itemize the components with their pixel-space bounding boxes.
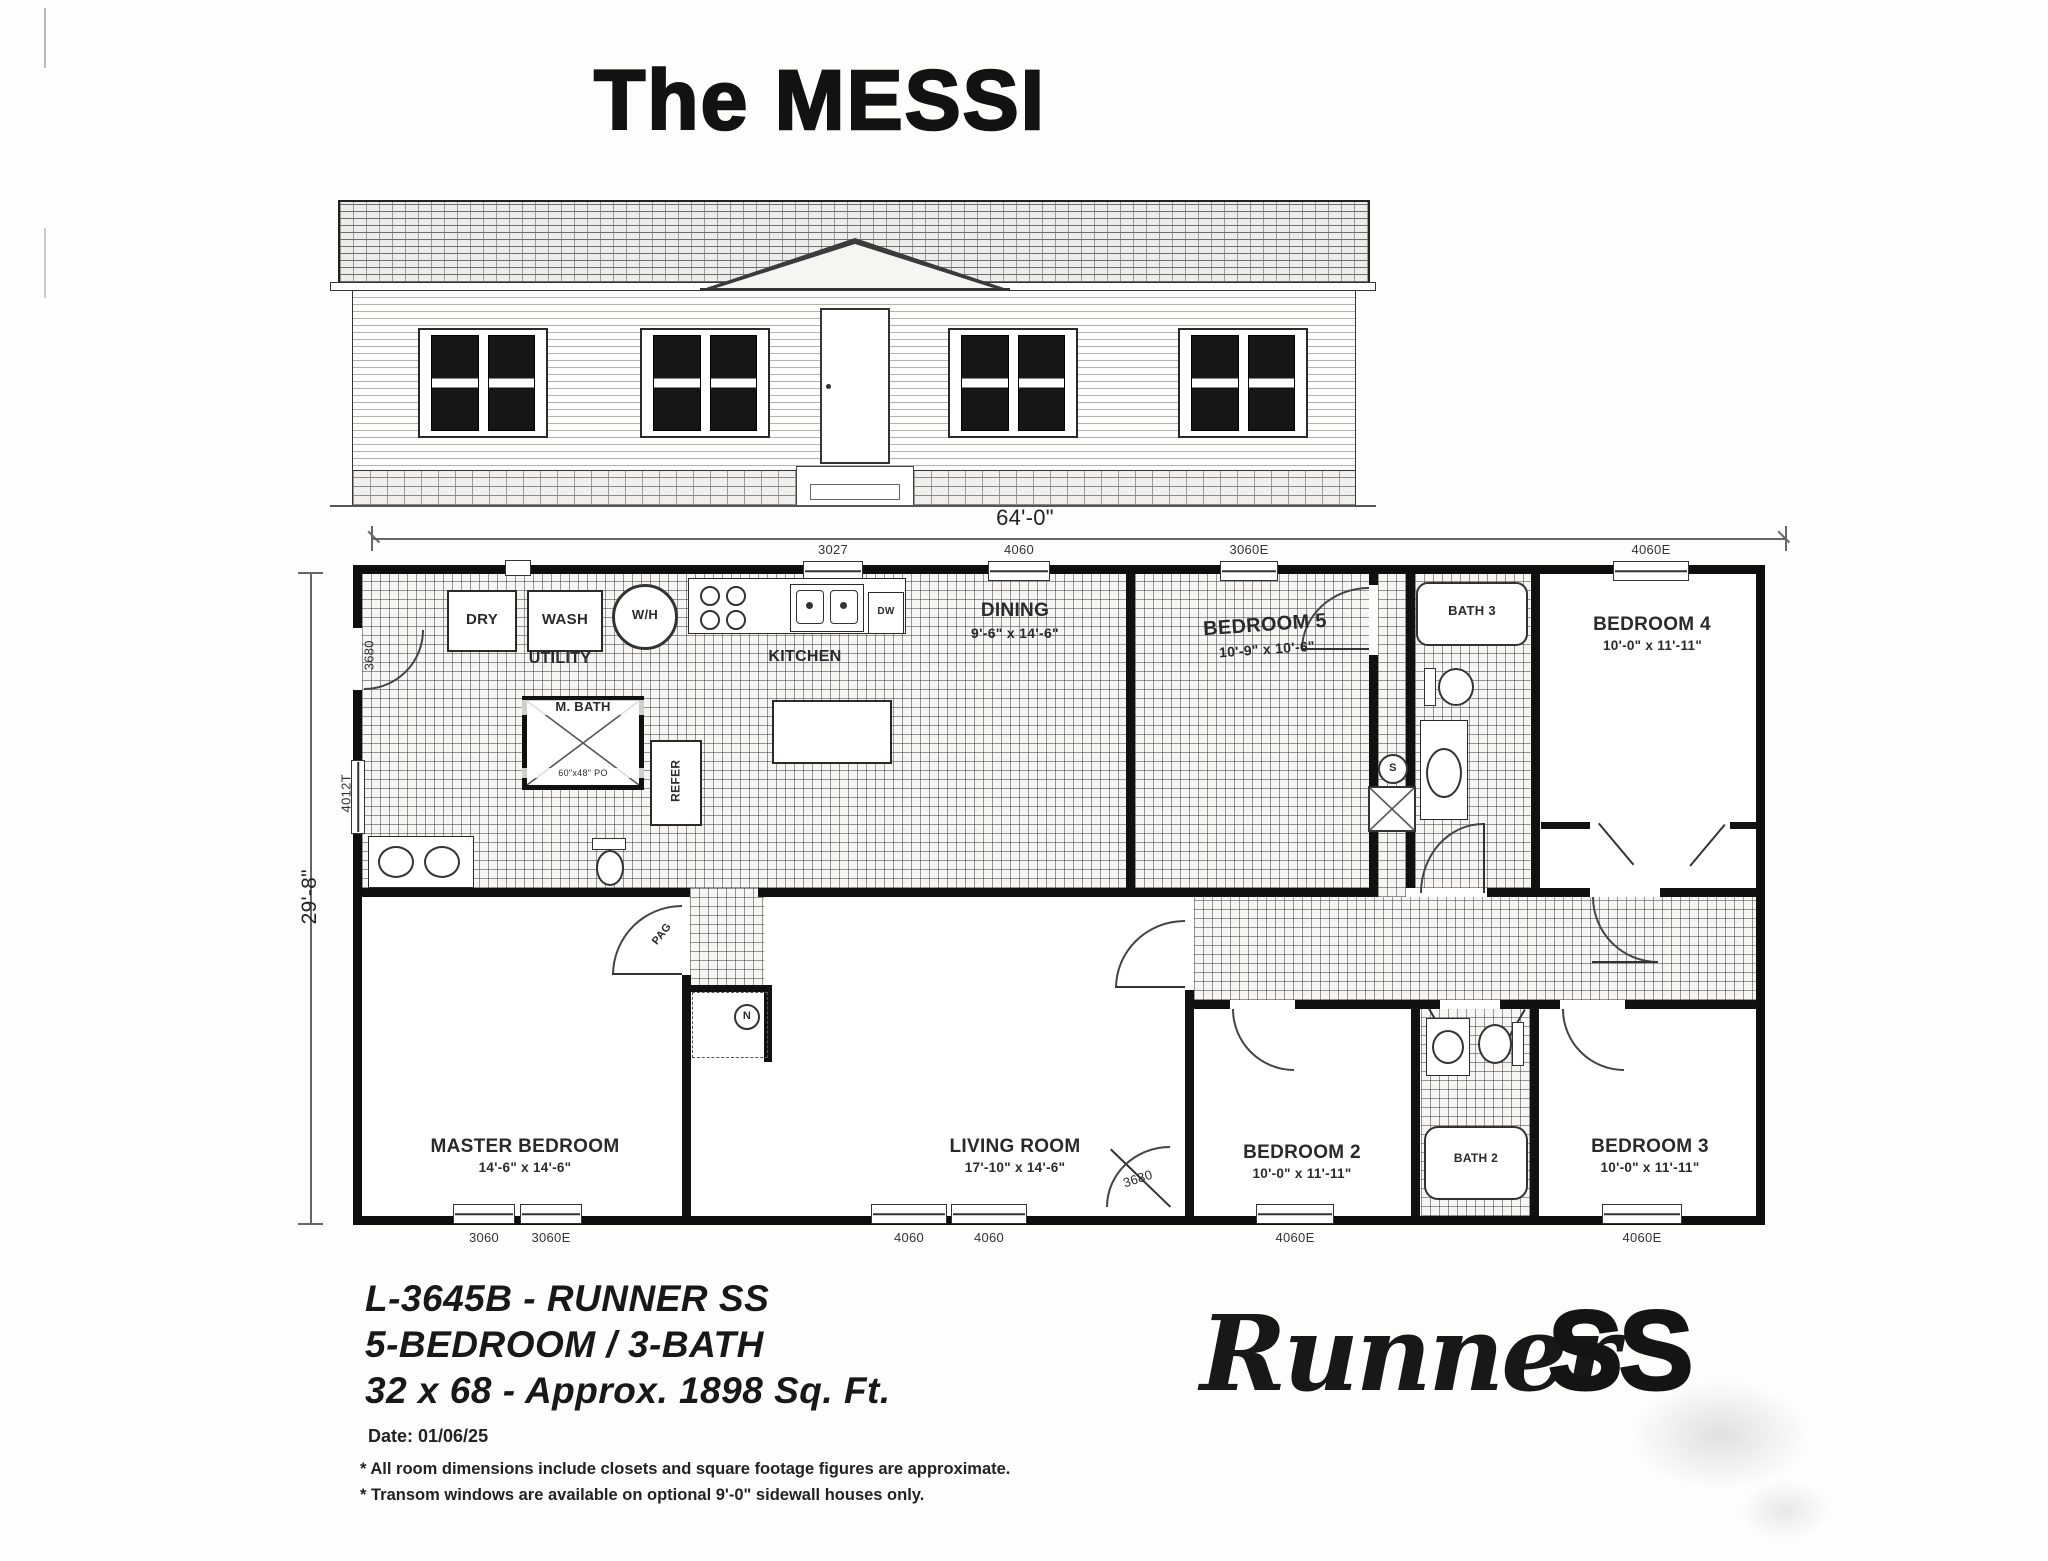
wall-living-right	[1185, 990, 1194, 1216]
dim-tick-bottom	[298, 1223, 323, 1225]
opening-label: 3060	[453, 1231, 515, 1246]
bedroom3-size: 10'-0" x 11'-11"	[1570, 1160, 1730, 1175]
opening-label-left-window: 4012T	[340, 758, 355, 828]
toilet-master	[596, 850, 624, 886]
floor-bed5-hall-strip	[1378, 574, 1406, 897]
utility-label: UTILITY	[495, 650, 625, 668]
shower-label: S	[1378, 762, 1408, 774]
window-sash	[431, 335, 479, 431]
wall-main-3	[1487, 888, 1590, 897]
master-bath-label: M. BATH	[522, 700, 644, 715]
toilet-bath3	[1438, 668, 1474, 706]
toilet-bath2	[1478, 1024, 1512, 1064]
date-label: Date: 01/06/25	[368, 1426, 688, 1447]
toilet-tank-bath2	[1512, 1022, 1524, 1066]
wall-nook-closet-top	[690, 985, 772, 992]
door-leaf-master	[612, 973, 682, 975]
wall-bath3-right	[1531, 574, 1540, 888]
range-burner	[726, 610, 746, 630]
bedroom3-label: BEDROOM 3	[1560, 1136, 1740, 1157]
vent-top	[505, 560, 531, 576]
window-4060E-bottom-2	[1602, 1204, 1682, 1224]
toilet-tank-bath3	[1424, 668, 1436, 706]
dining-size: 9'-6" x 14'-6"	[950, 626, 1080, 642]
gable-base	[700, 288, 1010, 291]
wall-master-right	[682, 975, 691, 1216]
floorplan-sheet: The MESSI 64'-0"	[0, 0, 2048, 1561]
wall-bed5-right-b	[1369, 655, 1378, 888]
bath2-vanity-sink	[1432, 1030, 1464, 1064]
bedroom2-size: 10'-0" x 11'-11"	[1222, 1166, 1382, 1181]
wall-bed5-right-a	[1369, 574, 1378, 585]
window-3060E-bottom	[520, 1204, 582, 1224]
wall-bath2-left	[1411, 1009, 1420, 1216]
ground-line	[330, 505, 1376, 507]
page-title: The MESSI	[510, 52, 1130, 152]
window-sash	[961, 335, 1009, 431]
door-leaf-bedroom4	[1592, 961, 1658, 963]
vanity-sink	[378, 846, 414, 878]
opening-label: 3060E	[1212, 543, 1286, 558]
opening-label: 4060	[988, 543, 1050, 558]
wall-gap-bottom-door	[1104, 1207, 1174, 1216]
window-4060-bottom-1	[871, 1204, 947, 1224]
wall-bed4-closet-b	[1730, 822, 1756, 829]
shower-x	[1370, 788, 1414, 830]
dining-label: DINING	[955, 600, 1075, 621]
wall-gap-left-door	[353, 628, 362, 690]
wall-bed4-closet-a	[1541, 822, 1590, 829]
washer-label: WASH	[527, 612, 603, 629]
opening-label: 4060E	[1252, 1231, 1338, 1246]
footnote-1: * All room dimensions include closets an…	[360, 1460, 1300, 1479]
bath3-label: BATH 3	[1416, 604, 1528, 619]
living-label: LIVING ROOM	[920, 1136, 1110, 1157]
window-sash	[1191, 335, 1239, 431]
range-burner	[726, 586, 746, 606]
scan-smudge	[1740, 1480, 1830, 1540]
window-4060E-top	[1613, 561, 1689, 581]
door-knob	[826, 384, 831, 389]
window-3060E-top	[1220, 561, 1278, 581]
sink-drain	[806, 602, 813, 609]
master-size: 14'-6" x 14'-6"	[452, 1160, 598, 1175]
living-size: 17'-10" x 14'-6"	[928, 1160, 1102, 1175]
toilet-tank-master	[592, 838, 626, 850]
dim-height-label: 29'-8"	[298, 832, 322, 962]
master-bath-size: 60"x48" PO	[522, 768, 644, 778]
refrigerator-label: REFER	[669, 727, 682, 835]
window-sash	[1248, 335, 1296, 431]
door-leaf-bath3	[1483, 823, 1485, 893]
gable-inner	[710, 244, 1000, 290]
range-burner	[700, 586, 720, 606]
opening-label: 3027	[803, 543, 863, 558]
window-4060E-bottom-1	[1256, 1204, 1334, 1224]
wall-hall-2	[1295, 1000, 1440, 1009]
bed-bath-config: 5-BEDROOM / 3-BATH	[365, 1324, 1125, 1366]
wall-bath2-right	[1530, 1009, 1539, 1216]
opening-label-left-door: 3680	[363, 625, 378, 685]
window-4060-top	[988, 561, 1050, 581]
window-3060-bottom	[453, 1204, 515, 1224]
wall-main-2	[758, 888, 1378, 897]
wall-hall-3	[1500, 1000, 1560, 1009]
floor-hall	[1194, 897, 1756, 1000]
scan-mark	[44, 8, 46, 68]
opening-label: 4060E	[1598, 1231, 1686, 1246]
opening-label: 4060E	[1608, 543, 1694, 558]
size-sqft: 32 x 68 - Approx. 1898 Sq. Ft.	[365, 1370, 1225, 1412]
range-burner	[700, 610, 720, 630]
dryer-label: DRY	[447, 612, 517, 629]
window-sash	[488, 335, 536, 431]
bedroom4-label: BEDROOM 4	[1572, 614, 1732, 635]
elevation-window-1	[418, 328, 548, 438]
elevation-window-2	[640, 328, 770, 438]
dim-tick-top	[298, 572, 323, 574]
kitchen-label: KITCHEN	[760, 648, 850, 666]
dishwasher-label: DW	[868, 606, 904, 617]
opening-label: 4060	[951, 1231, 1027, 1246]
opening-label: 3060E	[515, 1231, 587, 1246]
logo-runner-script: Runner	[1200, 1292, 1560, 1415]
hall-vanity-sink	[1426, 748, 1462, 798]
stoop-step	[810, 484, 900, 500]
scan-mark	[44, 228, 46, 298]
floor-entry-nook	[690, 888, 764, 988]
wall-hall-1	[1194, 1000, 1230, 1009]
bedroom2-label: BEDROOM 2	[1212, 1142, 1392, 1163]
door-leaf-living-hall	[1115, 986, 1185, 988]
bedroom4-size: 10'-0" x 11'-11"	[1580, 638, 1725, 653]
dim-arrow-right	[1778, 531, 1790, 543]
opening-label: 4060	[871, 1231, 947, 1246]
master-label: MASTER BEDROOM	[425, 1136, 625, 1157]
dim-tick-left	[371, 526, 373, 551]
wall-hall-4	[1625, 1000, 1756, 1009]
vanity-sink	[424, 846, 460, 878]
dim-width-label: 64'-0"	[950, 506, 1100, 531]
nook-label: N	[734, 1010, 760, 1022]
wall-bath3-left	[1406, 574, 1415, 888]
elevation-window-4	[1178, 328, 1308, 438]
water-heater-label: W/H	[612, 608, 678, 623]
dim-line-width	[372, 538, 1786, 540]
wall-dining-bed5	[1126, 574, 1135, 888]
footnote-2: * Transom windows are available on optio…	[360, 1486, 1300, 1505]
shower-stall	[1368, 786, 1416, 832]
wall-main-4	[1660, 888, 1756, 897]
window-sash	[1018, 335, 1066, 431]
window-sash	[710, 335, 758, 431]
elevation-window-3	[948, 328, 1078, 438]
wall-main-1	[362, 888, 690, 897]
kitchen-island	[772, 700, 892, 764]
sink-drain	[840, 602, 847, 609]
dim-arrow-left	[368, 531, 380, 543]
window-sash	[653, 335, 701, 431]
window-4060-bottom-2	[951, 1204, 1027, 1224]
bath2-label: BATH 2	[1424, 1152, 1528, 1165]
scan-smudge	[1630, 1380, 1810, 1490]
model-number: L-3645B - RUNNER SS	[365, 1278, 1125, 1320]
